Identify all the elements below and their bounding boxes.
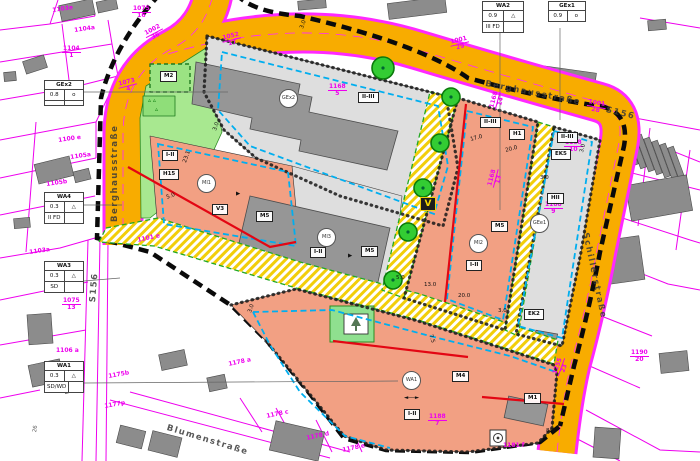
parcel-boundary-line bbox=[82, 240, 88, 461]
existing-building bbox=[659, 351, 689, 374]
existing-building bbox=[648, 19, 667, 31]
tree-center-dot bbox=[449, 95, 452, 98]
existing-building bbox=[34, 156, 74, 184]
parcel-boundary-line bbox=[0, 122, 96, 140]
parcel-boundary-line bbox=[0, 390, 40, 398]
tree-center-dot bbox=[438, 141, 441, 144]
existing-building bbox=[298, 0, 327, 10]
playground-area bbox=[330, 306, 374, 342]
existing-building bbox=[625, 175, 692, 221]
parcel-boundary-line bbox=[0, 282, 88, 300]
parcel-boundary-line bbox=[62, 24, 70, 88]
existing-building bbox=[27, 313, 53, 345]
existing-building bbox=[593, 427, 621, 459]
plan-canvas bbox=[0, 0, 700, 461]
green-m2-area bbox=[150, 64, 190, 92]
planting-area bbox=[143, 96, 175, 116]
tree-center-dot bbox=[381, 66, 384, 69]
existing-building bbox=[59, 0, 96, 21]
parcel-boundary-line bbox=[0, 196, 95, 215]
existing-building bbox=[4, 71, 17, 81]
parcel-boundary-line bbox=[240, 398, 262, 432]
existing-building bbox=[387, 0, 447, 19]
parcel-boundary-line bbox=[26, 122, 36, 252]
existing-building bbox=[63, 378, 81, 393]
existing-building bbox=[73, 168, 91, 183]
existing-building bbox=[148, 431, 182, 458]
parcel-boundary-line bbox=[0, 44, 112, 62]
parcel-boundary-line bbox=[50, 0, 58, 24]
zoning-plan-map: 1103e1104a11041107516100236107341100 e11… bbox=[0, 0, 700, 461]
tree-center-dot bbox=[391, 278, 394, 281]
parcel-boundary-line bbox=[0, 16, 95, 30]
existing-building bbox=[96, 0, 118, 13]
tree-center-dot bbox=[421, 186, 424, 189]
parcel-boundary-line bbox=[106, 242, 108, 461]
parcel-boundary-line bbox=[0, 238, 95, 258]
existing-building bbox=[116, 425, 146, 449]
existing-building bbox=[269, 421, 324, 461]
parcel-boundary-line bbox=[96, 240, 100, 461]
existing-building bbox=[159, 349, 188, 370]
existing-building bbox=[14, 217, 31, 228]
tree-center-dot bbox=[406, 230, 409, 233]
existing-building bbox=[28, 359, 64, 387]
existing-building bbox=[207, 374, 228, 391]
utility-symbol bbox=[490, 430, 506, 446]
